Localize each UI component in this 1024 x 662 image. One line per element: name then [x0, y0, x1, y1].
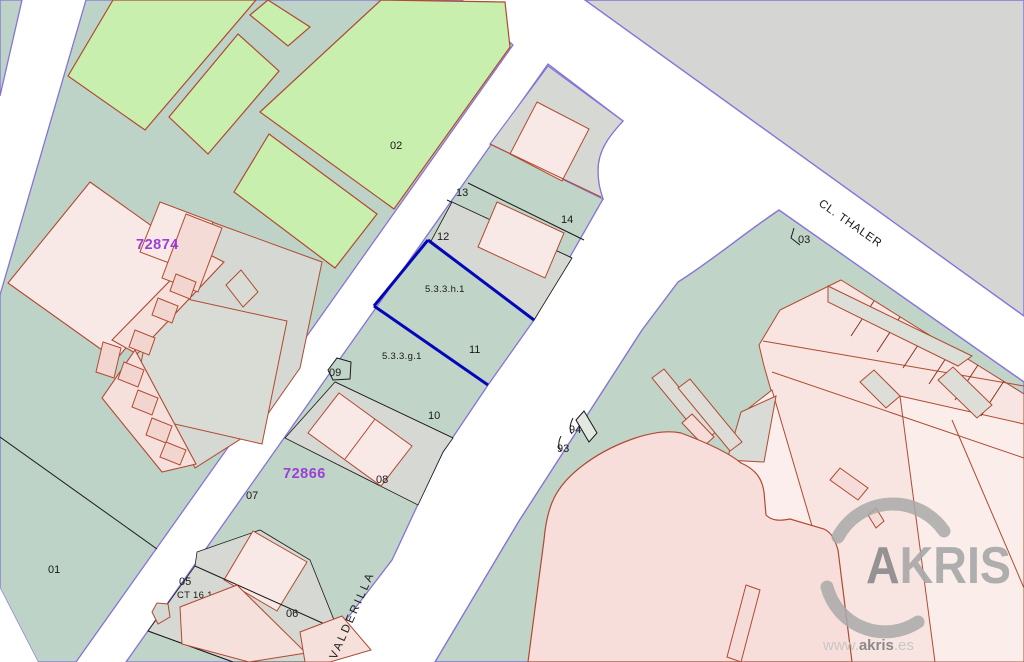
- svg-text:06: 06: [286, 608, 298, 620]
- svg-text:02: 02: [390, 140, 402, 152]
- svg-text:5.3.3.g.1: 5.3.3.g.1: [382, 351, 422, 362]
- svg-text:93: 93: [557, 443, 569, 455]
- svg-text:08: 08: [376, 474, 388, 486]
- svg-text:05: 05: [179, 576, 191, 588]
- svg-text:01: 01: [48, 564, 60, 576]
- svg-text:94: 94: [569, 424, 581, 436]
- svg-text:14: 14: [561, 214, 573, 226]
- svg-text:03: 03: [798, 234, 810, 246]
- svg-text:72866: 72866: [283, 466, 326, 482]
- svg-text:11: 11: [469, 344, 480, 356]
- svg-text:5.3.3.h.1: 5.3.3.h.1: [425, 284, 465, 295]
- svg-text:72874: 72874: [136, 237, 179, 253]
- svg-text:13: 13: [456, 187, 468, 199]
- svg-text:AKRIS: AKRIS: [866, 537, 1011, 595]
- svg-text:09: 09: [329, 367, 341, 379]
- svg-text:12: 12: [437, 231, 449, 243]
- svg-text:www.akris.es: www.akris.es: [822, 637, 914, 654]
- svg-text:07: 07: [246, 490, 258, 502]
- svg-text:10: 10: [428, 410, 440, 422]
